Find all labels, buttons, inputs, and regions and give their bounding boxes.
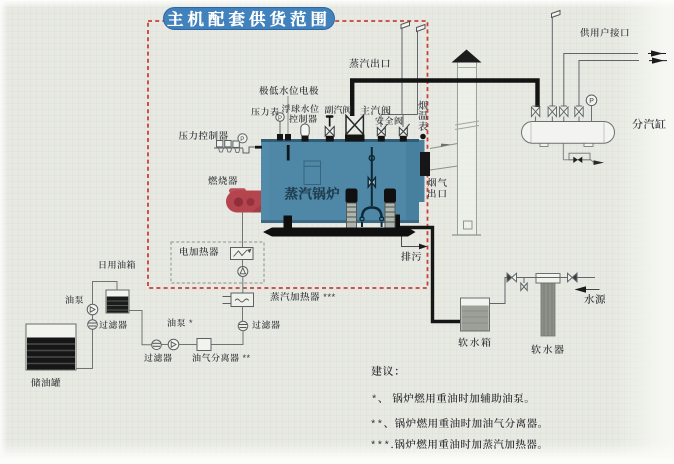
svg-text:P: P [240,137,244,143]
svg-text:蒸汽锅炉: 蒸汽锅炉 [285,183,341,203]
svg-text:P: P [589,98,594,105]
